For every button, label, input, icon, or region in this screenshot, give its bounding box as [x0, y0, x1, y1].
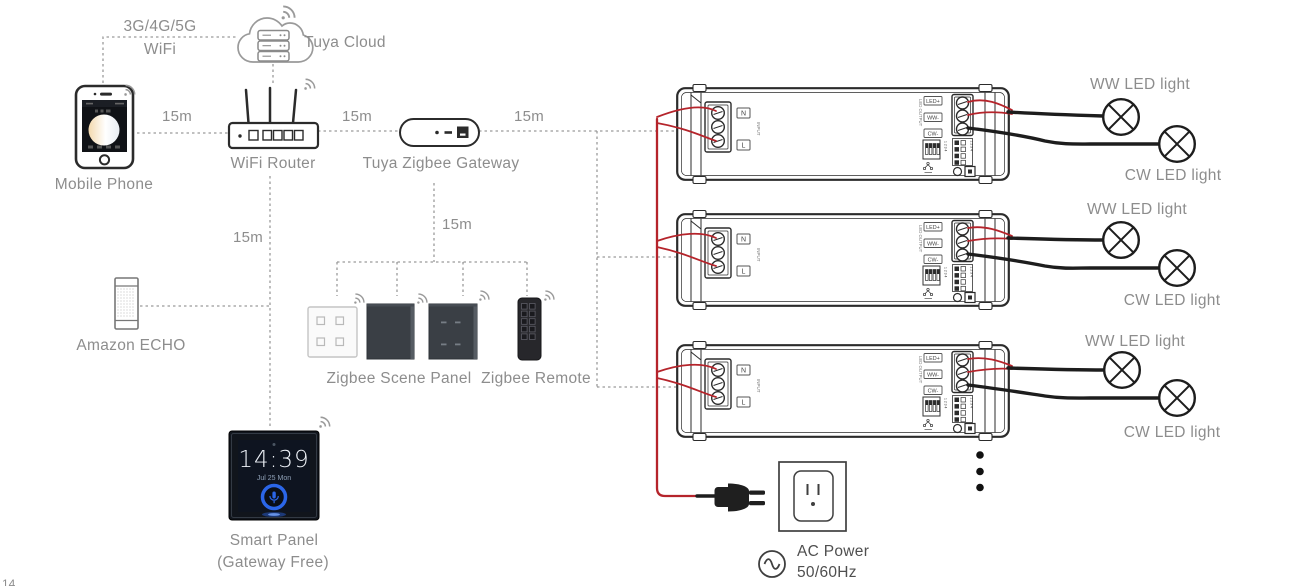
cw-led-label-1: CW LED light — [1125, 167, 1222, 185]
ww-lamp-1 — [1103, 99, 1139, 135]
wifi-signal-icon — [354, 294, 364, 304]
ww-led-label-1: WW LED light — [1090, 76, 1190, 94]
power-plug-icon — [715, 484, 766, 512]
distance-label: 15m — [162, 108, 192, 125]
zigbee-scene-panel-icons — [308, 304, 477, 359]
zigbee-remote-label: Zigbee Remote — [481, 370, 591, 388]
ww-wire-1 — [1008, 112, 1103, 116]
zigbee-remote-icon — [518, 298, 541, 360]
ac-power-label: AC Power — [797, 543, 869, 561]
tuya-cloud-label: Tuya Cloud — [304, 34, 386, 52]
led-controller-1 — [677, 85, 1009, 184]
wifi-signal-icon — [282, 6, 295, 19]
cw-led-label-2: CW LED light — [1124, 292, 1221, 310]
cw-lamp-3 — [1159, 380, 1195, 416]
smart-panel-date: Jul 25 Mon — [257, 475, 291, 482]
distance-label: 15m — [233, 229, 263, 246]
scene-panel-dark-1 — [367, 304, 414, 359]
ww-led-label-3: WW LED light — [1085, 333, 1185, 351]
led-controller-2 — [677, 211, 1009, 310]
mobile-phone-icon — [76, 86, 133, 168]
cw-lamp-1 — [1159, 126, 1195, 162]
ww-lamp-2 — [1103, 222, 1139, 258]
wall-outlet-icon — [779, 462, 846, 531]
distance-label: 15m — [342, 108, 372, 125]
zigbee-gateway-icon — [400, 119, 479, 146]
led-controller-3 — [677, 342, 1009, 441]
ac-sine-icon — [759, 551, 785, 577]
corner-mark: 14 — [2, 577, 15, 586]
ww-led-label-2: WW LED light — [1087, 201, 1187, 219]
zigbee-gateway-label: Tuya Zigbee Gateway — [363, 155, 520, 173]
wifi-router-icon — [229, 88, 318, 148]
ww-wire-3 — [1008, 368, 1104, 370]
scene-panel-white — [308, 307, 357, 357]
distance-label: 15m — [442, 216, 472, 233]
scene-panel-label: Zigbee Scene Panel — [327, 370, 472, 388]
distance-label: 15m — [514, 108, 544, 125]
scene-panel-dark-2 — [429, 304, 477, 359]
ac-frequency-label: 50/60Hz — [797, 564, 857, 582]
amazon-echo-icon — [115, 278, 138, 329]
cw-lamp-2 — [1159, 250, 1195, 286]
cw-led-label-3: CW LED light — [1124, 424, 1221, 442]
wifi-signal-icon — [319, 417, 329, 427]
wifi-signal-icon — [479, 291, 489, 301]
wifi-signal-icon — [304, 79, 314, 89]
ww-wire-2 — [1008, 238, 1103, 240]
network-wifi-label: WiFi — [144, 41, 176, 59]
wifi-router-label: WiFi Router — [230, 155, 315, 173]
mobile-phone-label: Mobile Phone — [55, 176, 153, 194]
diagram-canvas: N L INPUT LED OUTPUT LED+ WW- CW- 1 2 3 … — [0, 0, 1316, 586]
amazon-echo-label: Amazon ECHO — [76, 337, 185, 355]
microphone-icon — [272, 492, 275, 499]
smart-panel-time: 14:39 — [238, 447, 309, 473]
link-panel-drops — [337, 262, 527, 296]
smart-panel-sub-label: (Gateway Free) — [217, 554, 329, 572]
more-controllers-ellipsis — [976, 451, 984, 491]
tuya-cloud-icon — [238, 18, 313, 62]
smart-panel-label: Smart Panel — [230, 532, 319, 550]
wifi-signal-icon — [544, 291, 554, 301]
ww-lamp-3 — [1104, 352, 1140, 388]
network-type-label: 3G/4G/5G — [123, 18, 196, 36]
wifi-signal-icon — [417, 294, 427, 304]
